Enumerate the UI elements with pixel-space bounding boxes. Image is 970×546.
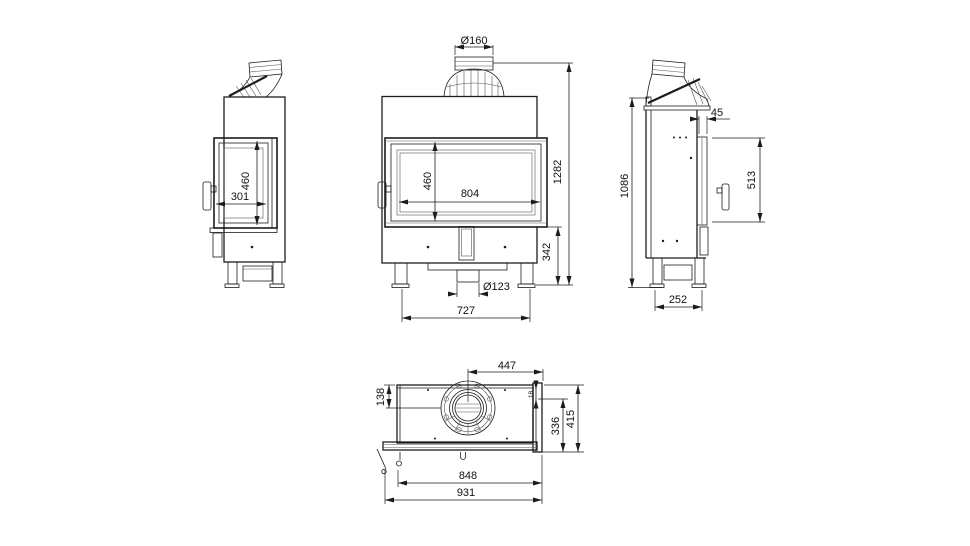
view-side-right: 1086 45 513 252 [619,60,765,311]
top-hole [434,438,436,440]
dim-front-glass-width: 804 [461,188,479,200]
right-hole [676,240,678,242]
dim-right-base-depth: 252 [669,294,687,306]
right-legs [650,258,706,288]
dim-front-inlet-diameter: Ø123 [483,281,510,293]
view-top: 447 138 18 336 415 848 931 [375,360,584,504]
right-chimney-elbow [646,60,711,106]
dim-top-overall-width: 931 [457,487,475,499]
dim-top-glass-width: 848 [459,470,477,482]
top-hole [506,438,508,440]
view-front: Ø160 460 804 1282 342 Ø123 727 [378,35,573,322]
dim-top-flue-to-right-edge: 447 [498,360,516,372]
right-hole [685,137,687,139]
dim-right-frame-offset: 45 [711,107,723,119]
dim-top-overall-depth: 415 [565,410,577,428]
dim-right-overall-height: 1086 [619,174,631,198]
front-base-and-inlet [428,263,507,282]
dim-left-door-width: 301 [231,191,249,203]
front-hole-right [504,246,507,249]
dim-front-glass-height: 460 [422,172,434,190]
left-body-hole [251,246,254,249]
right-hole [673,137,675,139]
dim-front-base-height: 342 [541,243,553,261]
top-hole [504,389,506,391]
left-legs [225,262,284,288]
dim-top-back-to-flue-center: 138 [375,388,387,406]
top-hole [427,389,429,391]
right-hole [662,240,664,242]
dim-front-leg-spacing: 727 [457,305,475,317]
top-front-glass-bar [377,442,537,474]
front-legs [392,263,535,288]
front-hole-left [427,246,430,249]
right-door-handle [717,184,729,210]
dim-right-door-height: 513 [746,171,758,189]
drawing-canvas: 460 301 [0,0,970,546]
right-hole [679,137,681,139]
front-ash-drawer [459,227,474,261]
right-hole [690,157,692,159]
dim-top-panel-gap: 18 [528,391,535,399]
view-side-left: 460 301 [203,60,285,288]
right-door-frame [697,137,708,255]
left-body [224,97,285,262]
dim-left-door-height: 460 [240,172,252,190]
front-glass-door [385,138,547,227]
dim-front-overall-height: 1282 [552,160,564,184]
left-chimney-elbow [229,60,282,97]
technical-drawing: 460 301 [0,0,970,546]
dim-top-inner-depth: 336 [550,417,562,435]
dim-front-flue-diameter: Ø160 [461,35,488,47]
